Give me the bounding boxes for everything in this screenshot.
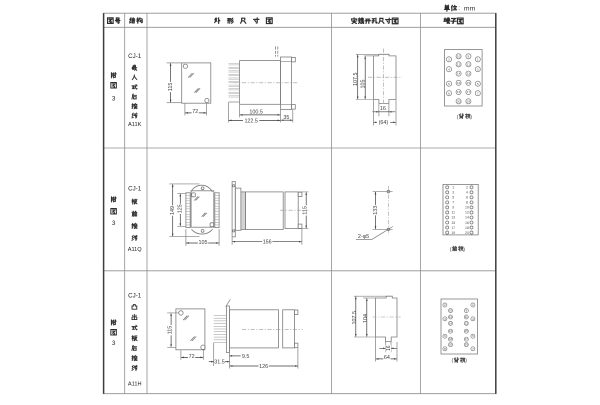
svg-text:10: 10 bbox=[449, 309, 453, 313]
svg-text:3: 3 bbox=[112, 96, 116, 103]
svg-text:(: ( bbox=[452, 358, 454, 364]
svg-text:104: 104 bbox=[363, 314, 369, 323]
svg-text:16: 16 bbox=[386, 345, 392, 351]
svg-text:15: 15 bbox=[465, 329, 469, 333]
svg-text:16: 16 bbox=[457, 81, 461, 85]
svg-text:CJ-1: CJ-1 bbox=[128, 186, 142, 193]
svg-text:): ) bbox=[463, 247, 465, 253]
svg-text:105: 105 bbox=[199, 240, 208, 246]
svg-text:6: 6 bbox=[448, 82, 450, 86]
svg-text:5: 5 bbox=[452, 196, 454, 200]
svg-text:): ) bbox=[465, 358, 467, 364]
svg-text:20: 20 bbox=[465, 231, 469, 235]
svg-text:11: 11 bbox=[467, 62, 470, 66]
svg-text:4: 4 bbox=[448, 67, 450, 71]
svg-text:15: 15 bbox=[451, 221, 455, 225]
svg-text:16: 16 bbox=[380, 106, 386, 112]
svg-text:149: 149 bbox=[170, 206, 176, 215]
svg-text:13: 13 bbox=[467, 72, 471, 76]
svg-text:A11H: A11H bbox=[128, 381, 142, 387]
svg-text:(64): (64) bbox=[379, 120, 389, 126]
svg-text:107.5: 107.5 bbox=[352, 311, 358, 325]
svg-text:16: 16 bbox=[449, 329, 453, 333]
svg-text:8: 8 bbox=[466, 201, 468, 205]
svg-text:18: 18 bbox=[465, 226, 469, 230]
svg-text:133: 133 bbox=[373, 206, 379, 215]
svg-text:19: 19 bbox=[451, 231, 455, 235]
svg-text:13: 13 bbox=[465, 321, 469, 325]
svg-text:15: 15 bbox=[467, 81, 471, 85]
svg-text:2-φ5: 2-φ5 bbox=[358, 234, 369, 240]
svg-text:19: 19 bbox=[467, 99, 471, 103]
svg-text:mm: mm bbox=[464, 6, 476, 13]
svg-text:100.5: 100.5 bbox=[249, 109, 263, 115]
svg-text:72: 72 bbox=[192, 109, 198, 115]
svg-text:11: 11 bbox=[451, 211, 455, 215]
svg-text:(: ( bbox=[457, 114, 459, 120]
svg-text:7: 7 bbox=[452, 201, 454, 205]
svg-text:1: 1 bbox=[452, 186, 454, 190]
svg-text:115: 115 bbox=[302, 206, 308, 215]
svg-text:12: 12 bbox=[449, 315, 453, 319]
svg-text:18: 18 bbox=[457, 90, 461, 94]
svg-text:10: 10 bbox=[457, 54, 461, 58]
svg-text:(: ( bbox=[450, 247, 452, 253]
svg-text:7: 7 bbox=[477, 91, 479, 95]
svg-text:72: 72 bbox=[189, 354, 195, 360]
svg-text:CJ-1: CJ-1 bbox=[128, 293, 142, 300]
svg-text:9.5: 9.5 bbox=[242, 354, 250, 360]
svg-text:3: 3 bbox=[112, 340, 116, 347]
svg-text:16: 16 bbox=[465, 221, 469, 225]
svg-text:14: 14 bbox=[465, 216, 469, 220]
svg-text:6: 6 bbox=[466, 196, 468, 200]
svg-text:12: 12 bbox=[457, 62, 461, 66]
svg-text:20: 20 bbox=[449, 343, 453, 347]
svg-text:31.5: 31.5 bbox=[214, 359, 225, 365]
svg-text:11: 11 bbox=[465, 315, 468, 319]
svg-text:13: 13 bbox=[451, 216, 455, 220]
svg-text:17: 17 bbox=[451, 226, 455, 230]
svg-text:3: 3 bbox=[452, 191, 454, 195]
svg-text:115: 115 bbox=[167, 326, 173, 335]
svg-text:3: 3 bbox=[112, 220, 116, 227]
svg-text:17: 17 bbox=[465, 337, 469, 341]
svg-text:125: 125 bbox=[178, 204, 184, 213]
svg-text:18: 18 bbox=[449, 337, 453, 341]
svg-text:A11Q: A11Q bbox=[128, 247, 143, 253]
svg-text:9: 9 bbox=[452, 206, 454, 210]
svg-text:5: 5 bbox=[477, 82, 479, 86]
svg-text:17: 17 bbox=[467, 90, 471, 94]
svg-text:9: 9 bbox=[468, 54, 470, 58]
svg-text:126: 126 bbox=[259, 364, 268, 370]
svg-text:10: 10 bbox=[465, 206, 469, 210]
svg-text:64: 64 bbox=[384, 355, 390, 361]
svg-text:A11K: A11K bbox=[128, 122, 142, 128]
svg-text:105: 105 bbox=[360, 80, 366, 89]
svg-text:20: 20 bbox=[457, 99, 461, 103]
svg-text:4: 4 bbox=[466, 191, 468, 195]
svg-text:2: 2 bbox=[466, 186, 468, 190]
svg-text:107.5: 107.5 bbox=[353, 73, 359, 87]
svg-text:115: 115 bbox=[168, 83, 174, 92]
svg-text:35: 35 bbox=[283, 115, 289, 121]
svg-text:3: 3 bbox=[477, 67, 479, 71]
svg-text:122.5: 122.5 bbox=[244, 118, 258, 124]
svg-text:CJ-1: CJ-1 bbox=[128, 53, 142, 60]
svg-text:1: 1 bbox=[477, 57, 479, 61]
svg-text:): ) bbox=[470, 114, 472, 120]
svg-text:2: 2 bbox=[448, 57, 450, 61]
svg-text:14: 14 bbox=[449, 321, 453, 325]
svg-text:8: 8 bbox=[448, 91, 450, 95]
svg-text:156: 156 bbox=[263, 239, 272, 245]
svg-text:19: 19 bbox=[465, 343, 469, 347]
svg-text:12: 12 bbox=[465, 211, 469, 215]
svg-text:14: 14 bbox=[457, 72, 461, 76]
svg-text::: : bbox=[458, 5, 460, 12]
